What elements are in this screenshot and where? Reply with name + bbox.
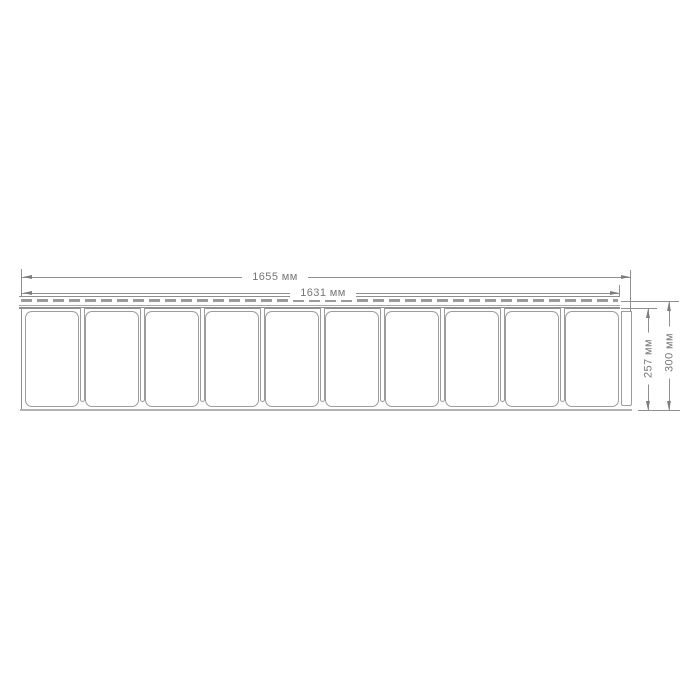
dimension-label-overall-height: 300 мм	[664, 327, 677, 379]
plank	[445, 311, 499, 407]
plank-divider	[560, 308, 565, 402]
plank	[25, 311, 79, 407]
arrowhead-down-icon	[646, 401, 650, 410]
dimension-line-overall-width	[22, 277, 630, 278]
plank	[85, 311, 139, 407]
strip-inner-edge	[19, 305, 620, 306]
plank	[205, 311, 259, 407]
arrowhead-up-icon	[646, 309, 650, 318]
plank	[145, 311, 199, 407]
dimension-label-overall-width: 1655 мм	[242, 271, 308, 284]
plank-divider	[260, 308, 265, 402]
arrowhead-left-icon	[23, 291, 32, 295]
plank	[505, 311, 559, 407]
panel-left-edge	[21, 308, 22, 409]
panel-bottom-edge	[20, 409, 632, 411]
arrowhead-right-icon	[610, 291, 619, 295]
arrowhead-down-icon	[667, 401, 671, 410]
plank-divider	[380, 308, 385, 402]
extension-line-left	[21, 269, 22, 299]
dimension-label-inner-width: 1631 мм	[290, 287, 356, 300]
arrowhead-right-icon	[621, 275, 630, 279]
panel-right-interlock-edge	[621, 311, 632, 406]
plank-divider	[440, 308, 445, 402]
plank	[385, 311, 439, 407]
plank-divider	[200, 308, 205, 402]
panel-dimension-drawing: 1655 мм 1631 мм 257 мм 300 мм	[0, 0, 700, 700]
plank	[565, 311, 619, 407]
plank-divider	[80, 308, 85, 402]
plank	[325, 311, 379, 407]
arrowhead-left-icon	[23, 275, 32, 279]
plank-divider	[500, 308, 505, 402]
plank	[265, 311, 319, 407]
plank-divider	[320, 308, 325, 402]
plank-divider	[140, 308, 145, 402]
extension-line-bottom-height	[638, 410, 680, 411]
dimension-label-inner-height: 257 мм	[643, 333, 656, 385]
extension-line-top-inner-height	[621, 308, 657, 309]
arrowhead-up-icon	[667, 302, 671, 311]
